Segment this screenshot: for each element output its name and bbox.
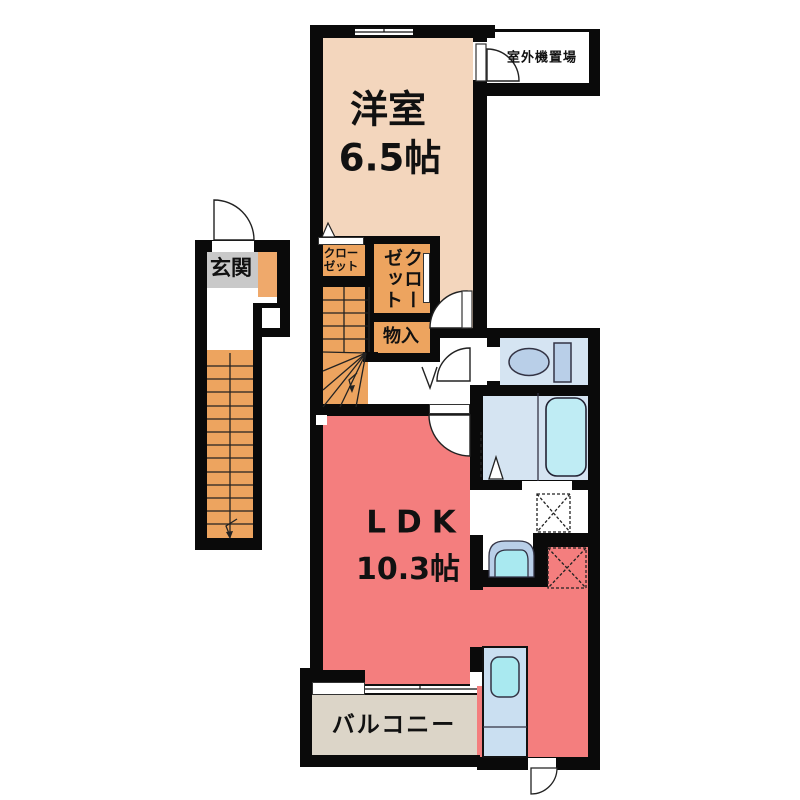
entrance-doorway [212,241,254,252]
ldk-label: LDK [366,506,466,541]
bathroom-floor [483,393,588,481]
ldk-door-leaf [429,404,470,414]
exterior-stairs-floor [207,350,253,538]
closet-vertical-label: クローゼット [381,243,421,315]
washroom-doorway [470,490,483,535]
western-room-floor-extension [436,236,473,330]
wall [487,328,600,338]
balcony-sill [312,682,365,695]
wall [470,570,537,587]
exit-door-arc [531,768,557,794]
entrance-label: 玄関 [210,257,252,281]
exit-doorway [528,758,556,770]
toilet-room-floor [500,338,588,385]
wall [195,538,262,550]
balcony-label: バルコニー [332,713,457,739]
washing-machine-area [537,494,570,532]
wall [310,670,365,682]
wall [363,352,378,362]
wall [195,240,207,550]
closet-upper-label: クロー ゼット [324,247,359,273]
wall-notch [470,672,483,686]
bathroom-doorway [522,481,572,490]
entrance-door-arc [214,200,254,240]
toilet-door-arc [437,348,470,381]
ldk-size-label: 10.3帖 [356,553,460,587]
outdoor-unit-label: 室外機置場 [507,52,577,67]
wall-notch [262,308,280,328]
western-room-label: 洋室 [350,89,426,132]
wall-outdoor-unit-edge [495,29,595,32]
interior-stairs-floor [323,287,368,407]
closet-upper-door [318,237,364,245]
wall [533,533,588,547]
storage-folding-door-mark [422,367,437,388]
wall [310,276,370,287]
floor-plan: 洋室 6.5帖 室外機置場 玄関 クロー ゼット クローゼット 物入 LDK 1… [0,0,800,800]
window-balcony [365,684,477,695]
wall [310,25,323,676]
toilet-doorway [487,347,500,381]
wall [253,337,262,545]
western-room-size-label: 6.5帖 [339,137,442,178]
wall [430,328,487,338]
window-top [355,27,413,37]
wall [300,755,480,767]
wall [430,236,440,362]
wall [473,385,588,396]
shoe-box [258,252,277,297]
wall [487,83,600,96]
storage-label: 物入 [383,327,419,347]
wall-notch [316,415,327,425]
closet-vertical-door [423,253,430,303]
wall [588,328,600,770]
ldk-floor [470,587,588,757]
wall [470,647,483,672]
wall [365,236,374,362]
outdoor-unit-doorway [473,42,487,80]
wall [300,668,312,767]
